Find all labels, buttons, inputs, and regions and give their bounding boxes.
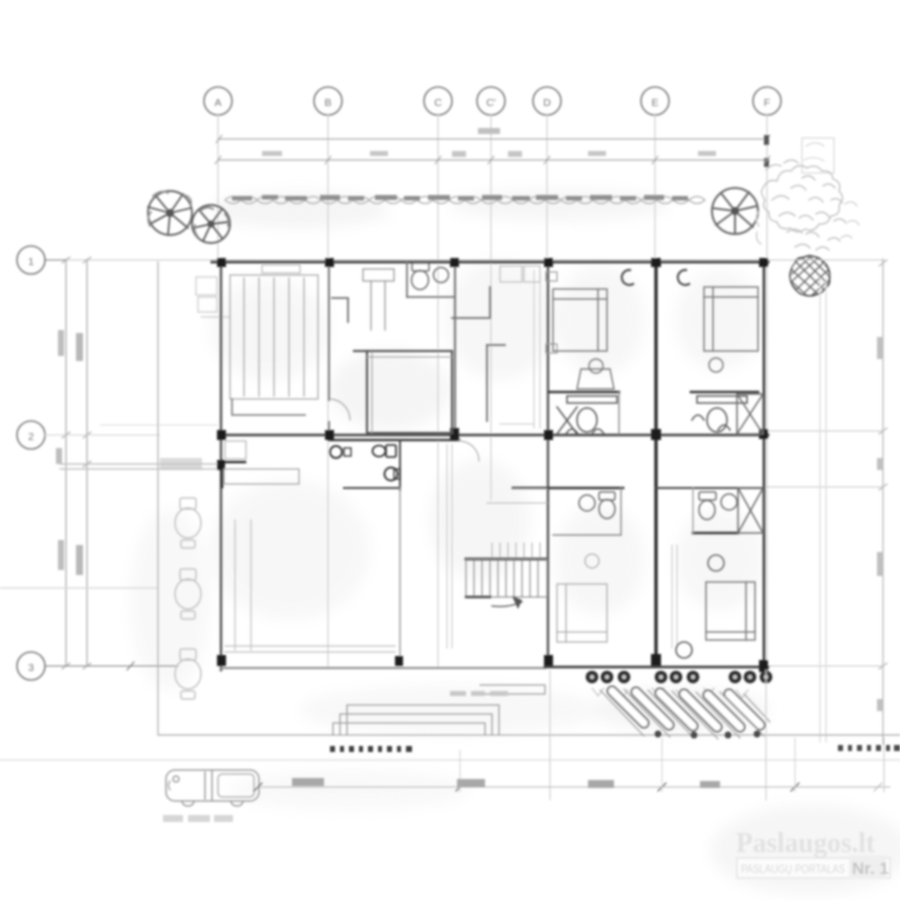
svg-text:2: 2 [28, 431, 34, 443]
svg-text:C: C [434, 97, 442, 109]
svg-text:Paslaugos.lt: Paslaugos.lt [736, 827, 875, 859]
svg-text:B: B [324, 97, 331, 109]
svg-text:F: F [764, 97, 770, 109]
svg-text:E: E [651, 97, 658, 109]
svg-text:Nr. 1: Nr. 1 [852, 859, 889, 878]
svg-text:3: 3 [28, 662, 34, 674]
svg-text:1: 1 [28, 256, 34, 268]
svg-text:D: D [543, 97, 551, 109]
svg-text:A: A [214, 97, 221, 109]
svg-text:C': C' [486, 97, 496, 109]
svg-text:PASLAUGŲ PORTALAS: PASLAUGŲ PORTALAS [741, 862, 845, 876]
